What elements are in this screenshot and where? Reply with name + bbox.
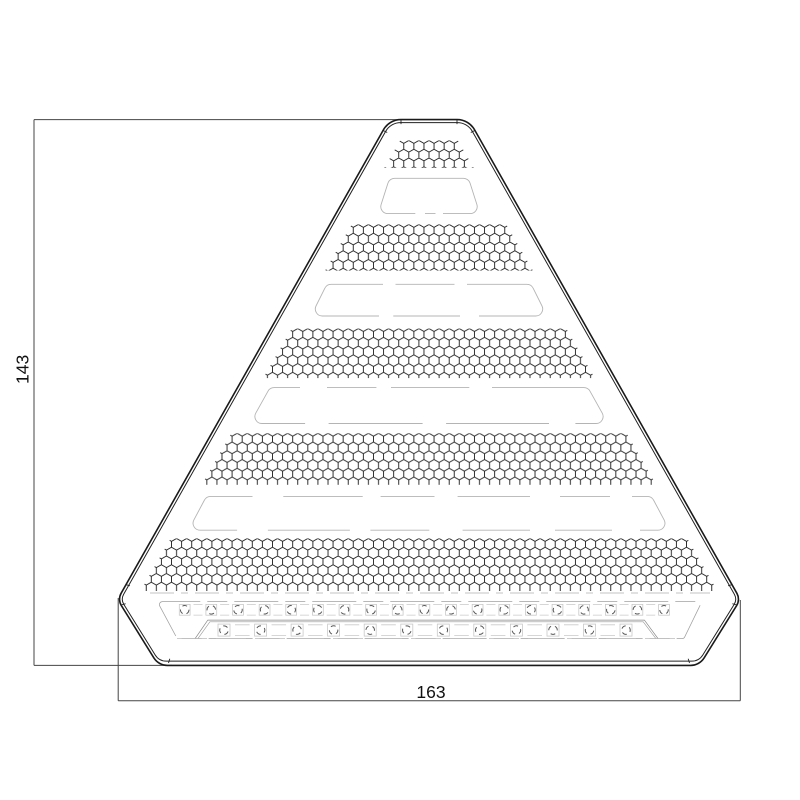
svg-text:143: 143 [12, 355, 32, 384]
svg-text:163: 163 [416, 682, 445, 702]
